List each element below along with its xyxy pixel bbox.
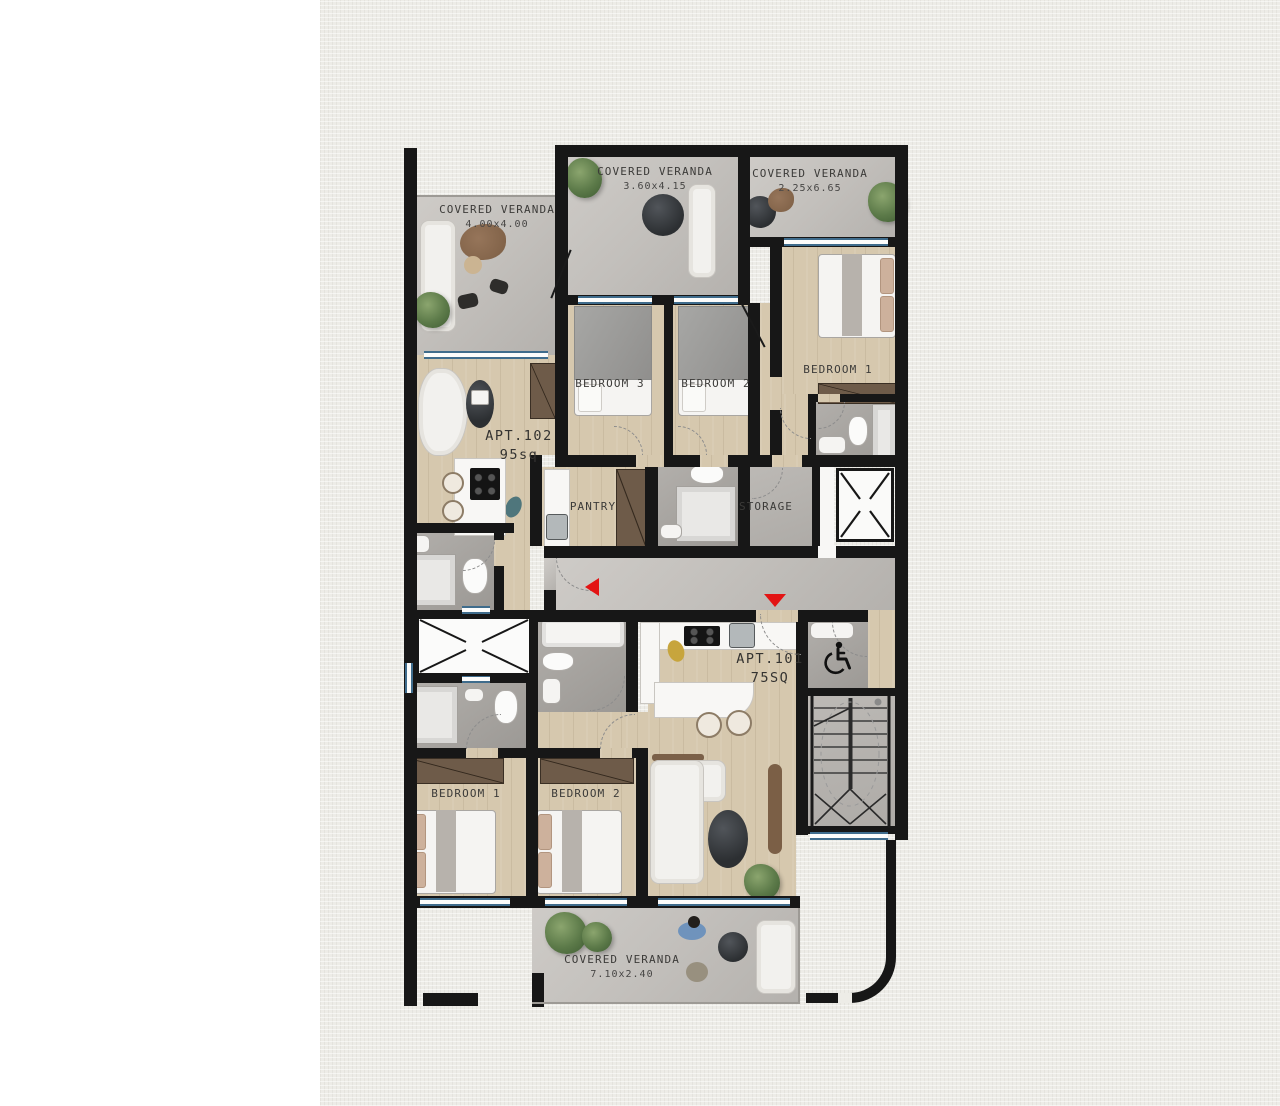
round-table <box>718 932 748 962</box>
window <box>674 296 738 304</box>
pillow <box>880 258 894 294</box>
wall-segment <box>555 455 908 467</box>
stair-hall <box>868 618 895 695</box>
toilet <box>542 652 574 671</box>
toilet <box>848 416 868 446</box>
pantry-closet <box>616 469 647 548</box>
door-opening <box>700 455 728 467</box>
door-opening <box>600 748 632 758</box>
l-shaped-sofa <box>650 760 704 884</box>
bedroom-label: BEDROOM 3 <box>575 377 645 390</box>
door-opening <box>494 540 504 566</box>
wall-segment <box>626 610 638 712</box>
wall-segment <box>404 148 417 1006</box>
wall-segment <box>530 455 542 546</box>
plant <box>582 922 612 952</box>
bedroom-label: BEDROOM 1 <box>431 787 501 800</box>
veranda-dims: 4.00x4.00 <box>465 219 528 230</box>
round-table <box>642 194 684 236</box>
wardrobe <box>410 758 504 784</box>
wall-segment <box>556 546 908 558</box>
veranda-open-edge <box>417 195 555 197</box>
duvet <box>678 306 756 380</box>
stool <box>696 712 722 738</box>
wall-segment <box>555 145 908 157</box>
veranda-dims: 7.10x2.40 <box>590 969 653 980</box>
veranda-label: COVERED VERANDA <box>597 165 713 178</box>
door-opening <box>544 558 556 590</box>
bathtub <box>541 618 625 648</box>
cooktop <box>470 468 500 500</box>
washbasin <box>464 688 484 702</box>
plant <box>744 864 780 900</box>
wardrobe <box>530 363 556 419</box>
storage-label: STORAGE <box>739 500 793 513</box>
entrance-arrow-icon <box>764 594 786 607</box>
elevator-icon <box>836 468 894 542</box>
kitchen-sink <box>729 623 755 648</box>
sofa <box>688 184 716 278</box>
window <box>658 898 790 906</box>
stool <box>442 472 464 494</box>
window <box>462 606 490 614</box>
door-opening <box>868 610 895 622</box>
door-opening <box>466 748 498 758</box>
veranda-label: COVERED VERANDA <box>564 953 680 966</box>
wall-segment <box>895 145 908 840</box>
laptop <box>471 390 489 405</box>
wall-segment <box>423 993 478 1006</box>
washbasin <box>542 678 561 704</box>
apartment-area: 75SQ <box>751 670 790 686</box>
corridor <box>556 558 895 610</box>
stool <box>442 500 464 522</box>
window <box>810 832 888 840</box>
toilet <box>690 464 724 484</box>
wardrobe <box>540 758 634 784</box>
sofa <box>756 920 796 994</box>
person-head <box>688 916 700 928</box>
plant <box>566 158 602 198</box>
wall-segment <box>636 756 648 905</box>
pillow <box>538 814 552 850</box>
plant <box>414 292 450 328</box>
bed-throw <box>842 254 862 336</box>
door-opening <box>772 455 802 467</box>
side-table <box>464 256 482 274</box>
door-opening <box>818 546 836 558</box>
door-opening <box>770 377 782 410</box>
wall-segment <box>738 145 750 303</box>
bedroom-label: BEDROOM 1 <box>803 363 873 376</box>
bed-throw <box>562 810 582 892</box>
veranda-label: COVERED VERANDA <box>439 203 555 216</box>
window <box>545 898 627 906</box>
apartment-label: APT.101 <box>736 651 803 667</box>
stool <box>726 710 752 736</box>
window <box>462 675 490 683</box>
kitchen-sink <box>546 514 568 540</box>
bedroom-label: BEDROOM 2 <box>681 377 751 390</box>
person <box>686 962 708 982</box>
window <box>420 898 510 906</box>
veranda-open-edge <box>798 908 800 1002</box>
duvet <box>574 306 652 380</box>
bedroom-label: BEDROOM 2 <box>551 787 621 800</box>
bed-throw <box>436 810 456 892</box>
pillow <box>880 296 894 332</box>
door-opening <box>818 394 840 402</box>
wall-segment <box>494 566 504 610</box>
staircase <box>806 694 895 830</box>
coffee-table <box>708 810 748 868</box>
veranda-label: COVERED VERANDA <box>752 167 868 180</box>
veranda-dims: 3.60x4.15 <box>623 181 686 192</box>
wall-segment <box>664 303 673 463</box>
apartment-label: APT.102 <box>485 428 552 444</box>
plant <box>545 912 587 954</box>
veranda-dims: 2.25x6.65 <box>778 183 841 194</box>
wall-segment <box>494 523 504 540</box>
window <box>405 663 413 693</box>
pantry-label: PANTRY <box>570 500 616 513</box>
entrance-arrow-icon <box>585 578 599 596</box>
washbasin <box>660 524 682 539</box>
window <box>578 296 652 304</box>
door-opening <box>636 455 664 467</box>
shower <box>676 486 736 542</box>
pillow <box>538 852 552 888</box>
wall-segment <box>555 157 568 463</box>
wall-gap <box>838 993 852 1003</box>
wheelchair-icon <box>818 640 854 676</box>
wall-segment <box>770 247 782 377</box>
cooktop <box>684 626 720 646</box>
floor-plan-sheet: COVERED VERANDA 4.00x4.00 COVERED VERAND… <box>0 0 1280 1106</box>
window <box>784 238 888 246</box>
curved-exterior-wall <box>806 840 896 1003</box>
wall-segment <box>544 546 556 558</box>
apartment-area: 95sq <box>500 447 539 463</box>
sideboard <box>768 764 782 854</box>
veranda-open-edge <box>532 1002 800 1004</box>
washbasin <box>818 436 846 454</box>
light-well-icon <box>416 616 532 676</box>
window <box>424 351 548 359</box>
elevator-lobby <box>820 467 834 546</box>
wall-segment <box>812 455 820 546</box>
wall-segment <box>645 455 658 546</box>
